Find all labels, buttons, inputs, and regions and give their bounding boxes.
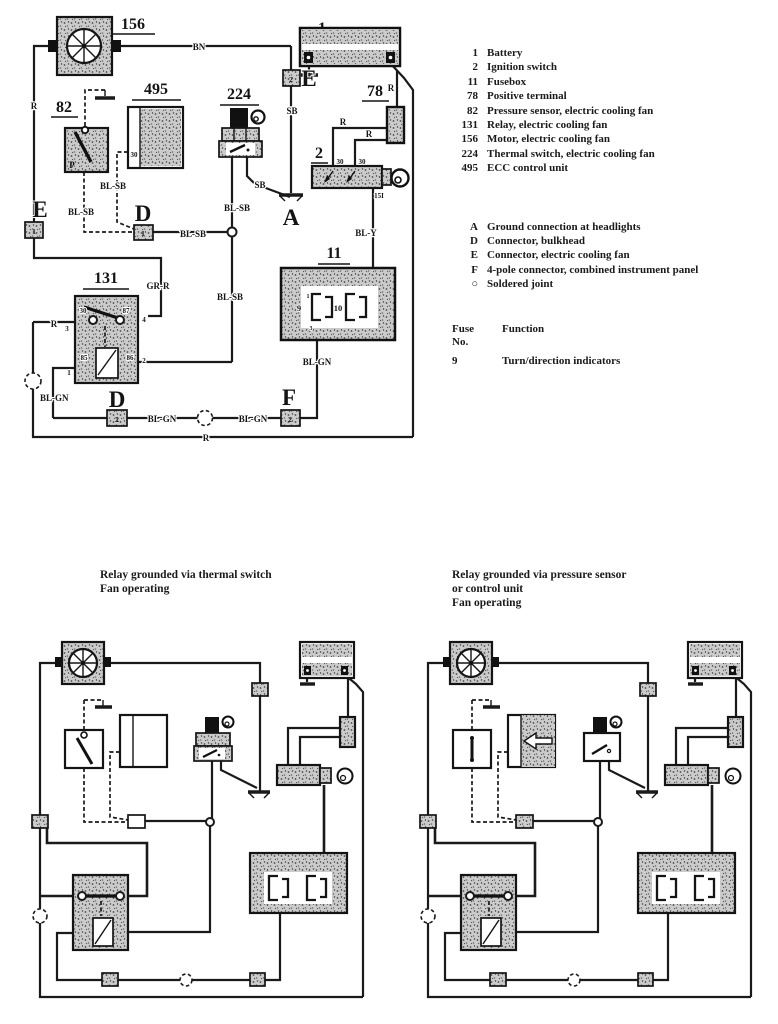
legend-item-label: Pressure sensor, electric cooling fan [487,104,653,118]
connector-f-letter: F [282,385,296,410]
legend-item-number: 1 [452,46,478,60]
caption-left-line2: Fan operating [100,582,272,596]
legend-components: 1Battery 2Ignition switch 11Fusebox 78Po… [452,46,778,176]
connector-d1 [516,815,533,828]
legend-item-number: 78 [452,89,478,103]
fusebox-id-label: 11 [326,245,341,262]
caption-right: Relay grounded via pressure sensor or co… [452,568,626,610]
diagram-pressure-sensor-operation [400,630,778,1015]
battery [688,642,742,678]
inline-splice [198,411,213,426]
battery-1: 1 [300,20,400,66]
fuse-terminal-3: 3 [310,326,313,332]
connector-f2-pin: 2 [288,415,292,424]
connector-e2: E 2 [283,66,317,91]
wire-label-r: R [31,101,38,111]
connector-e1: E 1 [25,197,48,238]
main-wiring-diagram: 156 82 P 495 30 224 1 [0,0,450,470]
relay-pin-2: 2 [142,357,146,365]
legend-item: 1Battery [452,46,778,60]
connector-d1 [128,815,145,828]
fuse-table-header-fuse: Fuse [452,323,502,336]
legend-item-label: Thermal switch, electric cooling fan [487,147,655,161]
connector-e2 [252,683,268,696]
inline-splice [25,373,41,389]
connector-d2 [490,973,506,986]
relay-terminal-85: 85 [81,354,89,362]
fuse-row-number: 9 [452,355,502,368]
fuse-terminal-1: 1 [307,294,310,300]
connector-e-letter: E [32,197,47,222]
soldered-joint [594,818,602,826]
wire-label-bl-sb: BL-SB [100,181,126,191]
connector-e1 [32,815,48,828]
legend-item-label: Fusebox [487,75,526,89]
relay-terminal-87: 87 [123,307,131,315]
fuse-10-label: 10 [334,303,343,313]
caption-right-line1: Relay grounded via pressure sensor [452,568,626,582]
legend-item-number: 11 [452,75,478,89]
thermal-switch-224: 224 [219,86,265,157]
inline-splice [568,974,580,986]
legend-symbol-item: F4-pole connector, combined instrument p… [452,263,778,277]
caption-left: Relay grounded via thermal switch Fan op… [100,568,272,596]
relay-terminal-86: 86 [127,354,135,362]
connector-d-letter: D [109,387,126,412]
wire-label-bl-gn: BL-GN [148,414,177,424]
inline-splice [180,974,192,986]
wire-label-bl-sb: BL-SB [217,292,243,302]
inline-splice [421,909,435,923]
legend-symbol-item: EConnector, electric cooling fan [452,248,778,262]
wire-label-r: R [203,433,210,443]
legend-symbol-item: ○Soldered joint [452,277,778,291]
wire-label-sb: SB [286,106,297,116]
connector-e1 [420,815,436,828]
legend-symbol-key: A [452,220,478,234]
fuse-table-header-function: Function [502,323,544,336]
soldered-joint [228,228,237,237]
relay-pin-3: 3 [65,325,69,333]
diagram-thermal-switch-operation [15,630,415,1015]
legend-item: 78Positive terminal [452,89,778,103]
legend-item-label: Ignition switch [487,60,557,74]
ignition-terminal-30a: 30 [337,158,345,166]
motor [443,642,499,684]
pressure-sensor-82: 82 P [51,99,108,172]
legend-item: 11Fusebox [452,75,778,89]
wire-label-r: R [340,117,347,127]
legend-item-label: Battery [487,46,522,60]
ecc-control-unit [120,715,167,767]
fuse-9-label: 9 [297,303,301,313]
legend-symbol-key: D [452,234,478,248]
ignition-switch [277,765,353,785]
legend-item-number: 156 [452,132,478,146]
relay-energized [461,875,516,950]
legend-item-number: 2 [452,60,478,74]
positive-terminal [340,717,355,747]
soldered-joint [206,818,214,826]
ecc-id-label: 495 [144,81,168,98]
fuse-row-function: Turn/direction indicators [502,355,620,368]
inline-splice [33,909,47,923]
ecc-control-unit-495: 495 30 [128,81,183,168]
ecc-control-unit-active [508,715,555,767]
legend: 1Battery 2Ignition switch 11Fusebox 78Po… [452,46,778,368]
fusebox-11: 11 9 10 1 3 [281,245,395,340]
fusebox [638,853,735,913]
legend-item-number: 131 [452,118,478,132]
caption-left-line1: Relay grounded via thermal switch [100,568,272,582]
motor-id-label: 156 [121,16,145,33]
wire-label-bn: BN [193,42,206,52]
legend-item: 224Thermal switch, electric cooling fan [452,147,778,161]
legend-symbol-label: Connector, electric cooling fan [487,248,630,262]
legend-item-label: Motor, electric cooling fan [487,132,610,146]
caption-right-line3: Fan operating [452,596,626,610]
thermal-switch-active [194,717,234,762]
connector-e2-pin: 2 [289,75,293,84]
legend-item: 495ECC control unit [452,161,778,175]
wire-label-bl-sb: BL-SB [68,207,94,217]
battery [300,642,354,678]
relay-energized [73,875,128,950]
legend-item-number: 82 [452,104,478,118]
ignition-id-label: 2 [315,145,323,162]
ignition-terminal-30b: 30 [359,158,367,166]
pressure-sensor-closed [453,730,491,768]
connector-d2-pin: 2 [115,415,119,424]
wire-label-gr-r: GR-R [147,281,170,291]
wire-label-sb: SB [254,180,265,190]
wire-label-bl-sb: BL-SB [180,229,206,239]
legend-item: 131Relay, electric cooling fan [452,118,778,132]
wire-label-r: R [366,129,373,139]
legend-item-label: ECC control unit [487,161,568,175]
legend-item-number: 495 [452,161,478,175]
pressure-sensor-open [65,730,103,768]
wire-label-bl-gn: BL-GN [239,414,268,424]
legend-symbol-label: 4-pole connector, combined instrument pa… [487,263,698,277]
wire-label-bl-sb: BL-SB [224,203,250,213]
ignition-switch-2: 2 30 30 15I [311,145,409,200]
legend-symbol-item: AGround connection at headlights [452,220,778,234]
wire-label-r: R [388,83,395,93]
legend-item: 2Ignition switch [452,60,778,74]
fuse-table: FuseFunction No. 9Turn/direction indicat… [452,323,778,368]
connector-e2 [640,683,656,696]
positive-terminal [728,717,743,747]
ignition-switch [665,765,741,785]
connector-f2: F 2 [281,385,300,426]
wiring-diagram-page: 156 82 P 495 30 224 1 [0,0,778,1024]
legend-symbol-item: DConnector, bulkhead [452,234,778,248]
legend-item: 82Pressure sensor, electric cooling fan [452,104,778,118]
connector-e1-pin: 1 [32,227,36,236]
soldered-joint-icon: ○ [452,277,478,291]
relay-pin-4: 4 [142,316,146,324]
legend-symbol-key: E [452,248,478,262]
motor [55,642,111,684]
legend-symbol-key: F [452,263,478,277]
fuse-table-header-no: No. [452,336,502,349]
caption-right-line2: or control unit [452,582,626,596]
connector-f2 [638,973,653,986]
relay-pin-1: 1 [67,369,71,377]
ground-a-letter: A [283,205,300,230]
legend-item-label: Relay, electric cooling fan [487,118,607,132]
pressure-sensor-p-label: P [69,160,75,170]
relay-131: 131 30 87 85 86 3 4 1 2 [65,270,146,383]
relay-id-label: 131 [94,270,118,287]
fusebox [250,853,347,913]
relay-terminal-30: 30 [80,307,88,315]
wire-label-bl-gn: BL-GN [303,357,332,367]
legend-symbol-label: Ground connection at headlights [487,220,641,234]
ecc-terminal-30: 30 [131,151,139,159]
pressure-sensor-id-label: 82 [56,99,72,116]
legend-item-label: Positive terminal [487,89,567,103]
ignition-terminal-15i: 15I [374,192,384,200]
wire-label-r: R [51,319,58,329]
legend-item: 156Motor, electric cooling fan [452,132,778,146]
connector-d-letter: D [135,201,152,226]
connector-d1: D 1 [134,201,153,240]
connector-e-letter: E [301,66,316,91]
thermal-switch-open [584,717,622,762]
legend-symbols: AGround connection at headlights DConnec… [452,220,778,292]
legend-symbol-label: Soldered joint [487,277,553,291]
connector-d2: D 2 [107,387,127,426]
wire-label-bl-gn: BL-GN [40,393,69,403]
legend-item-number: 224 [452,147,478,161]
connector-d2 [102,973,118,986]
connector-d1-pin: 1 [141,229,145,238]
legend-symbol-label: Connector, bulkhead [487,234,585,248]
connector-f2 [250,973,265,986]
thermal-switch-id-label: 224 [227,86,251,103]
positive-terminal-id-label: 78 [367,83,383,100]
wire-label-bl-y: BL-Y [355,228,377,238]
